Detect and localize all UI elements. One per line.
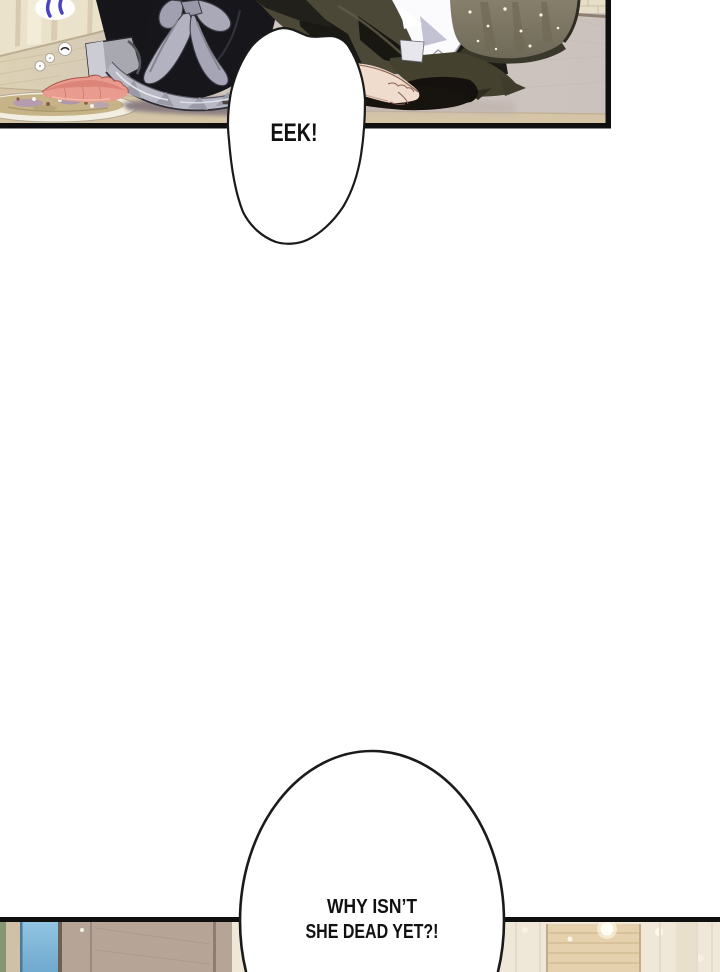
svg-text:EEK!: EEK! <box>271 119 318 147</box>
svg-text:SHE DEAD YET?!: SHE DEAD YET?! <box>306 921 439 943</box>
svg-text:WHY ISN’T: WHY ISN’T <box>327 896 417 918</box>
